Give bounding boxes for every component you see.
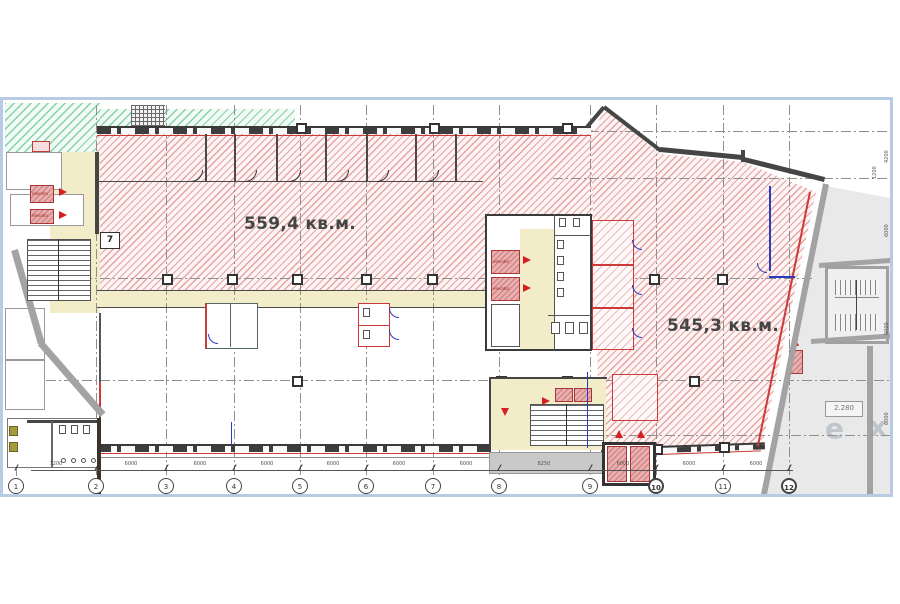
- fixture: [363, 308, 370, 317]
- stair-bottom: [530, 404, 604, 446]
- window-wall-bottom-left: [97, 444, 493, 452]
- dim-label: 6000: [186, 461, 214, 467]
- grid-line-3: [166, 105, 167, 490]
- exit-arrow: [637, 430, 645, 438]
- grid-bubble-7: 7: [425, 478, 441, 494]
- entry-room-right: [612, 374, 658, 421]
- neighbor-stair-flight-1: [835, 280, 879, 295]
- meeting-room-b-door-1: [389, 308, 399, 318]
- wc-fixture: [557, 288, 564, 297]
- room-divider-1: [205, 134, 207, 181]
- floor-plan-canvas[interactable]: elevator elevator 7 elevator elevator: [0, 97, 893, 497]
- neighbor-stair-landing: [835, 297, 879, 298]
- wc-divider-h: [554, 235, 592, 236]
- wc-stall: [59, 425, 66, 434]
- red-wall-segment: [99, 382, 101, 406]
- window-red-line-top: [97, 135, 591, 136]
- dim-label-right: 6000: [884, 213, 890, 237]
- section-line-blue: [587, 372, 588, 448]
- column: [227, 274, 238, 285]
- grid-bubble-1: 1: [8, 478, 24, 494]
- grid-bubble-11: 11: [715, 478, 731, 494]
- utility-box: [9, 442, 18, 452]
- stair-left: [27, 239, 91, 301]
- exit-arrow: [501, 408, 509, 416]
- elevator-label-4: elevator: [493, 286, 510, 291]
- corridor-wall-top: [97, 290, 495, 291]
- dimension-line-bottom: [31, 470, 793, 471]
- crosshatch-zone: [131, 105, 165, 126]
- grid-line-5: [300, 105, 301, 490]
- stair-left-rail: [58, 239, 59, 301]
- dim-label: 6000: [609, 461, 637, 467]
- bottom-core-wall-top: [489, 377, 607, 379]
- wc-toilet: [551, 322, 560, 334]
- corridor-wall-bottom: [97, 307, 495, 308]
- elevator-shaft-bottom-2: [574, 388, 592, 402]
- column: [719, 442, 730, 453]
- wc-fixture: [557, 256, 564, 265]
- dim-label: 6000: [319, 461, 347, 467]
- grid-line-10: [656, 105, 657, 490]
- elevator-label-1: elevator: [32, 191, 49, 196]
- elevator-shaft-bottom-1: [555, 388, 573, 402]
- wc-toilet: [565, 322, 574, 334]
- area-label-right: 545,3 кв.м.: [653, 316, 793, 336]
- exit-arrow: [542, 397, 550, 405]
- dim-label: 7200: [42, 461, 70, 467]
- utility-box: [9, 426, 18, 436]
- grid-bubble-5: 5: [292, 478, 308, 494]
- dim-label: 6000: [117, 461, 145, 467]
- left-exterior-wall: [95, 152, 99, 234]
- dim-label: 6000: [385, 461, 413, 467]
- grid-bubble-2: 2: [88, 478, 104, 494]
- neighbor-stair-arrow-line: [856, 280, 857, 330]
- exit-arrow: [59, 211, 67, 219]
- grid-bubble-10: 10: [648, 478, 664, 494]
- wc-sink: [91, 458, 96, 463]
- dim-label: 6000: [452, 461, 480, 467]
- wc-cluster-wall: [27, 420, 101, 423]
- grid-bubble-6: 6: [358, 478, 374, 494]
- wc-fixture: [557, 272, 564, 281]
- room-divider-5: [366, 134, 368, 181]
- grid-line-h2: [553, 178, 890, 179]
- tech-room-2: [592, 265, 634, 308]
- tech-room-3: [592, 308, 634, 350]
- meeting-room-a-divider: [230, 303, 231, 347]
- bottom-core-wall-left: [489, 377, 491, 451]
- column: [361, 274, 372, 285]
- dim-label-right: 6000: [884, 311, 890, 335]
- room-divider-6: [415, 134, 417, 181]
- elevator-label-3: elevator: [493, 259, 510, 264]
- meeting-room-b-door-2: [389, 330, 399, 340]
- window-wall-top: [97, 126, 591, 134]
- neighbor-stair-room: [825, 266, 889, 344]
- column: [296, 123, 307, 134]
- exit-arrow: [59, 188, 67, 196]
- area-label-left: 559,4 кв.м.: [230, 214, 370, 234]
- fixture: [363, 330, 370, 339]
- column: [162, 274, 173, 285]
- column: [562, 123, 573, 134]
- room-divider-2: [234, 134, 236, 181]
- neighbor-stair-flight-2: [835, 314, 879, 331]
- wc-toilet: [579, 322, 588, 334]
- grid-line-7: [433, 105, 434, 490]
- exit-arrow: [523, 284, 531, 292]
- meeting-room-b-divider: [358, 325, 390, 326]
- blue-partition: [769, 186, 771, 271]
- left-annex-room-4: [5, 360, 45, 410]
- dim-label-right: 6000: [884, 401, 890, 425]
- room-divider-4: [325, 134, 327, 181]
- exit-arrow: [615, 430, 623, 438]
- floor-plan-page: elevator elevator 7 elevator elevator: [0, 0, 900, 604]
- grid-bubble-3: 3: [158, 478, 174, 494]
- downpipe-line: [231, 422, 232, 446]
- grid-bubble-9: 9: [582, 478, 598, 494]
- corridor-fill: [97, 290, 495, 307]
- dim-label-right: 4200: [884, 139, 890, 163]
- grid-line-11: [723, 105, 724, 490]
- grid-line-h4: [28, 380, 890, 381]
- column: [427, 274, 438, 285]
- wc-divider-h2: [548, 315, 592, 316]
- room-divider-7: [455, 134, 457, 181]
- elevator-label-2: elevator: [32, 213, 49, 218]
- blue-partition-h: [769, 276, 795, 278]
- dim-label: 6000: [253, 461, 281, 467]
- stair-bottom-rail: [566, 404, 567, 446]
- grid-line-h1: [553, 131, 890, 132]
- column: [717, 274, 728, 285]
- wc-stall: [71, 425, 78, 434]
- room-number-box: 7: [100, 232, 120, 249]
- wc-fixture: [559, 218, 566, 227]
- wc-fixture: [573, 218, 580, 227]
- wc-stall: [83, 425, 90, 434]
- dim-label: 8250: [530, 461, 558, 467]
- column: [689, 376, 700, 387]
- grid-line-h3: [28, 278, 815, 279]
- column: [649, 274, 660, 285]
- dim-label: 6000: [742, 461, 770, 467]
- dim-label-right: 1200: [872, 155, 878, 179]
- green-hatch-zone-a: [5, 103, 100, 153]
- wc-fixture: [557, 240, 564, 249]
- wc-sink: [81, 458, 86, 463]
- exit-arrow: [523, 256, 531, 264]
- room-divider-3: [276, 134, 278, 181]
- watermark-letter-e: e: [825, 412, 844, 445]
- grid-bubble-12: 12: [781, 478, 797, 494]
- column: [292, 376, 303, 387]
- core-room-below: [491, 304, 520, 347]
- column: [292, 274, 303, 285]
- grid-bubble-4: 4: [226, 478, 242, 494]
- grid-bubble-8: 8: [491, 478, 507, 494]
- tech-room-1: [592, 220, 634, 265]
- wc-sink: [71, 458, 76, 463]
- left-red-box: [32, 141, 50, 152]
- dim-label: 6000: [675, 461, 703, 467]
- column: [429, 123, 440, 134]
- green-hatch-zone-b: [100, 109, 295, 127]
- window-red-line-bottom: [97, 453, 493, 454]
